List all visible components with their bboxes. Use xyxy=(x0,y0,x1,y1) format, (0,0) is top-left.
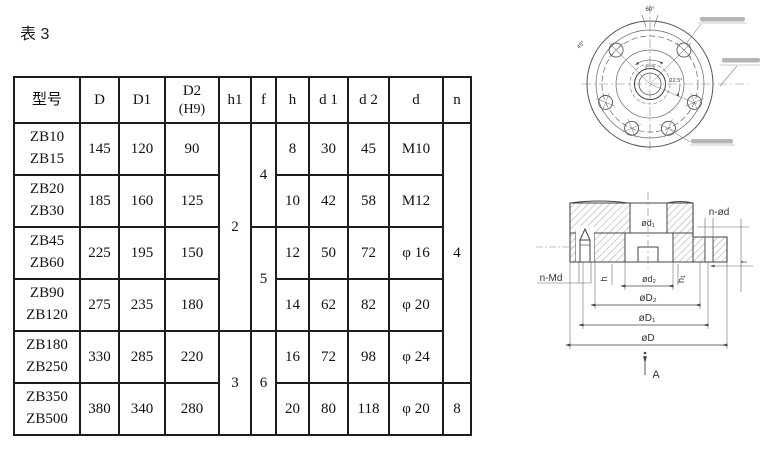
d-cell: M12 xyxy=(389,175,443,227)
bolt-pin xyxy=(536,226,594,262)
h-cell: 16 xyxy=(276,331,309,383)
d2-cell: 72 xyxy=(348,227,389,279)
D2-cell: 125 xyxy=(165,175,219,227)
h-cell: 12 xyxy=(276,227,309,279)
dim-D1: øD₁ xyxy=(583,313,708,325)
svg-text:h: h xyxy=(599,276,609,281)
dim-h: h xyxy=(599,264,612,285)
col-header-model: 型号 xyxy=(14,77,80,123)
leader-annotation-right xyxy=(720,58,760,86)
dim-D2: øD₂ xyxy=(595,293,700,305)
svg-text:øD: øD xyxy=(641,333,654,344)
dim-h1: h₁ xyxy=(676,264,686,285)
n-cell: 8 xyxy=(443,383,471,435)
model-cell: ZB180 ZB250 xyxy=(14,331,80,383)
d1-cell: 30 xyxy=(309,123,348,175)
D-cell: 145 xyxy=(80,123,119,175)
D2-cell: 90 xyxy=(165,123,219,175)
svg-text:øD₂: øD₂ xyxy=(639,293,656,304)
model-cell: ZB90 ZB120 xyxy=(14,279,80,331)
annotation-text-blur xyxy=(691,139,733,144)
f-merged-cell: 5 xyxy=(251,227,276,331)
col-header-n: n xyxy=(443,77,471,123)
model-cell: ZB350 ZB500 xyxy=(14,383,80,435)
angle-label-22-5: 22.5° xyxy=(670,78,683,84)
D-cell: 330 xyxy=(80,331,119,383)
D1-cell: 340 xyxy=(119,383,165,435)
D2-cell: 150 xyxy=(165,227,219,279)
flange-section-view-drawing: ød₁ n-ød n-Md h h₁ f xyxy=(530,185,784,395)
D1-cell: 235 xyxy=(119,279,165,331)
col-header-h1: h1 xyxy=(219,77,251,123)
table-row: ZB180 ZB250 330 285 220 3 6 16 72 98 φ 2… xyxy=(14,331,471,383)
D2-cell: 220 xyxy=(165,331,219,383)
svg-text:h₁: h₁ xyxy=(676,275,686,283)
d2-cell: 82 xyxy=(348,279,389,331)
model-cell: ZB20 ZB30 xyxy=(14,175,80,227)
offset-angle-arc xyxy=(678,84,680,96)
n-merged-cell: 4 xyxy=(443,123,471,383)
col-header-d1: d 1 xyxy=(309,77,348,123)
col-header-D1: D1 xyxy=(119,77,165,123)
col-header-d: d xyxy=(389,77,443,123)
D1-cell: 195 xyxy=(119,227,165,279)
angle-label-60: 60° xyxy=(645,7,655,13)
dim-D: øD xyxy=(570,333,727,345)
D1-cell: 120 xyxy=(119,123,165,175)
d1-cell: 62 xyxy=(309,279,348,331)
d2-cell: 45 xyxy=(348,123,389,175)
D-cell: 225 xyxy=(80,227,119,279)
d2-cell: 98 xyxy=(348,331,389,383)
model-cell: ZB10 ZB15 xyxy=(14,123,80,175)
rim-hole xyxy=(705,237,713,262)
f-merged-cell: 4 xyxy=(251,123,276,227)
angle-label-45: 45° xyxy=(576,40,586,50)
dim-f: f xyxy=(714,260,753,278)
D1-cell: 160 xyxy=(119,175,165,227)
dim-d2: ød₂ xyxy=(625,274,673,286)
document-page: 表 3 型号 D D1 D2(H9) h1 f h d 1 d 2 d n xyxy=(0,0,784,459)
d-cell: M10 xyxy=(389,123,443,175)
annotation-text-blur xyxy=(700,17,745,22)
table-title: 表 3 xyxy=(20,20,49,44)
flange-front-view-drawing: 60° 22.5° 45° xyxy=(540,0,784,168)
d1-cell: 42 xyxy=(309,175,348,227)
D2-cell: 180 xyxy=(165,279,219,331)
leader-annotation-bottom xyxy=(670,130,735,145)
radial-line-337 xyxy=(650,84,697,104)
col-header-D: D xyxy=(80,77,119,123)
d1-cell: 50 xyxy=(309,227,348,279)
svg-text:n-ød: n-ød xyxy=(709,207,730,218)
d-cell: φ 24 xyxy=(389,331,443,383)
h1-merged-cell: 2 xyxy=(219,123,251,331)
h-cell: 10 xyxy=(276,175,309,227)
annotation-text-blur xyxy=(722,58,760,63)
f-merged-cell: 6 xyxy=(251,331,276,435)
D-cell: 185 xyxy=(80,175,119,227)
d-cell: φ 16 xyxy=(389,227,443,279)
h-cell: 20 xyxy=(276,383,309,435)
h1-merged-cell: 3 xyxy=(219,331,251,435)
col-header-d2: d 2 xyxy=(348,77,389,123)
dim-label-d1: ød₁ xyxy=(641,218,655,228)
svg-text:A: A xyxy=(652,369,660,381)
h-cell: 14 xyxy=(276,279,309,331)
d1-cell: 72 xyxy=(309,331,348,383)
D1-cell: 285 xyxy=(119,331,165,383)
h-cell: 8 xyxy=(276,123,309,175)
table-row: ZB10 ZB15 145 120 90 2 4 8 30 45 M10 4 xyxy=(14,123,471,175)
spec-table: 型号 D D1 D2(H9) h1 f h d 1 d 2 d n ZB10 Z… xyxy=(13,76,472,436)
svg-text:f: f xyxy=(740,260,749,263)
col-header-f: f xyxy=(251,77,276,123)
d-cell: φ 20 xyxy=(389,279,443,331)
d1-cell: 80 xyxy=(309,383,348,435)
D-cell: 380 xyxy=(80,383,119,435)
view-direction-A: A xyxy=(644,352,661,381)
d2-cell: 58 xyxy=(348,175,389,227)
model-cell: ZB45 ZB60 xyxy=(14,227,80,279)
D-cell: 275 xyxy=(80,279,119,331)
col-header-h: h xyxy=(276,77,309,123)
D2-cell: 280 xyxy=(165,383,219,435)
header-row: 型号 D D1 D2(H9) h1 f h d 1 d 2 d n xyxy=(14,77,471,123)
svg-text:ød₂: ød₂ xyxy=(642,274,657,284)
col-header-D2-tolerance: (H9) xyxy=(166,101,218,119)
svg-text:øD₁: øD₁ xyxy=(639,313,656,324)
d-cell: φ 20 xyxy=(389,383,443,435)
col-header-D2: D2(H9) xyxy=(165,77,219,123)
svg-text:n-Md: n-Md xyxy=(540,273,563,284)
d2-cell: 118 xyxy=(348,383,389,435)
